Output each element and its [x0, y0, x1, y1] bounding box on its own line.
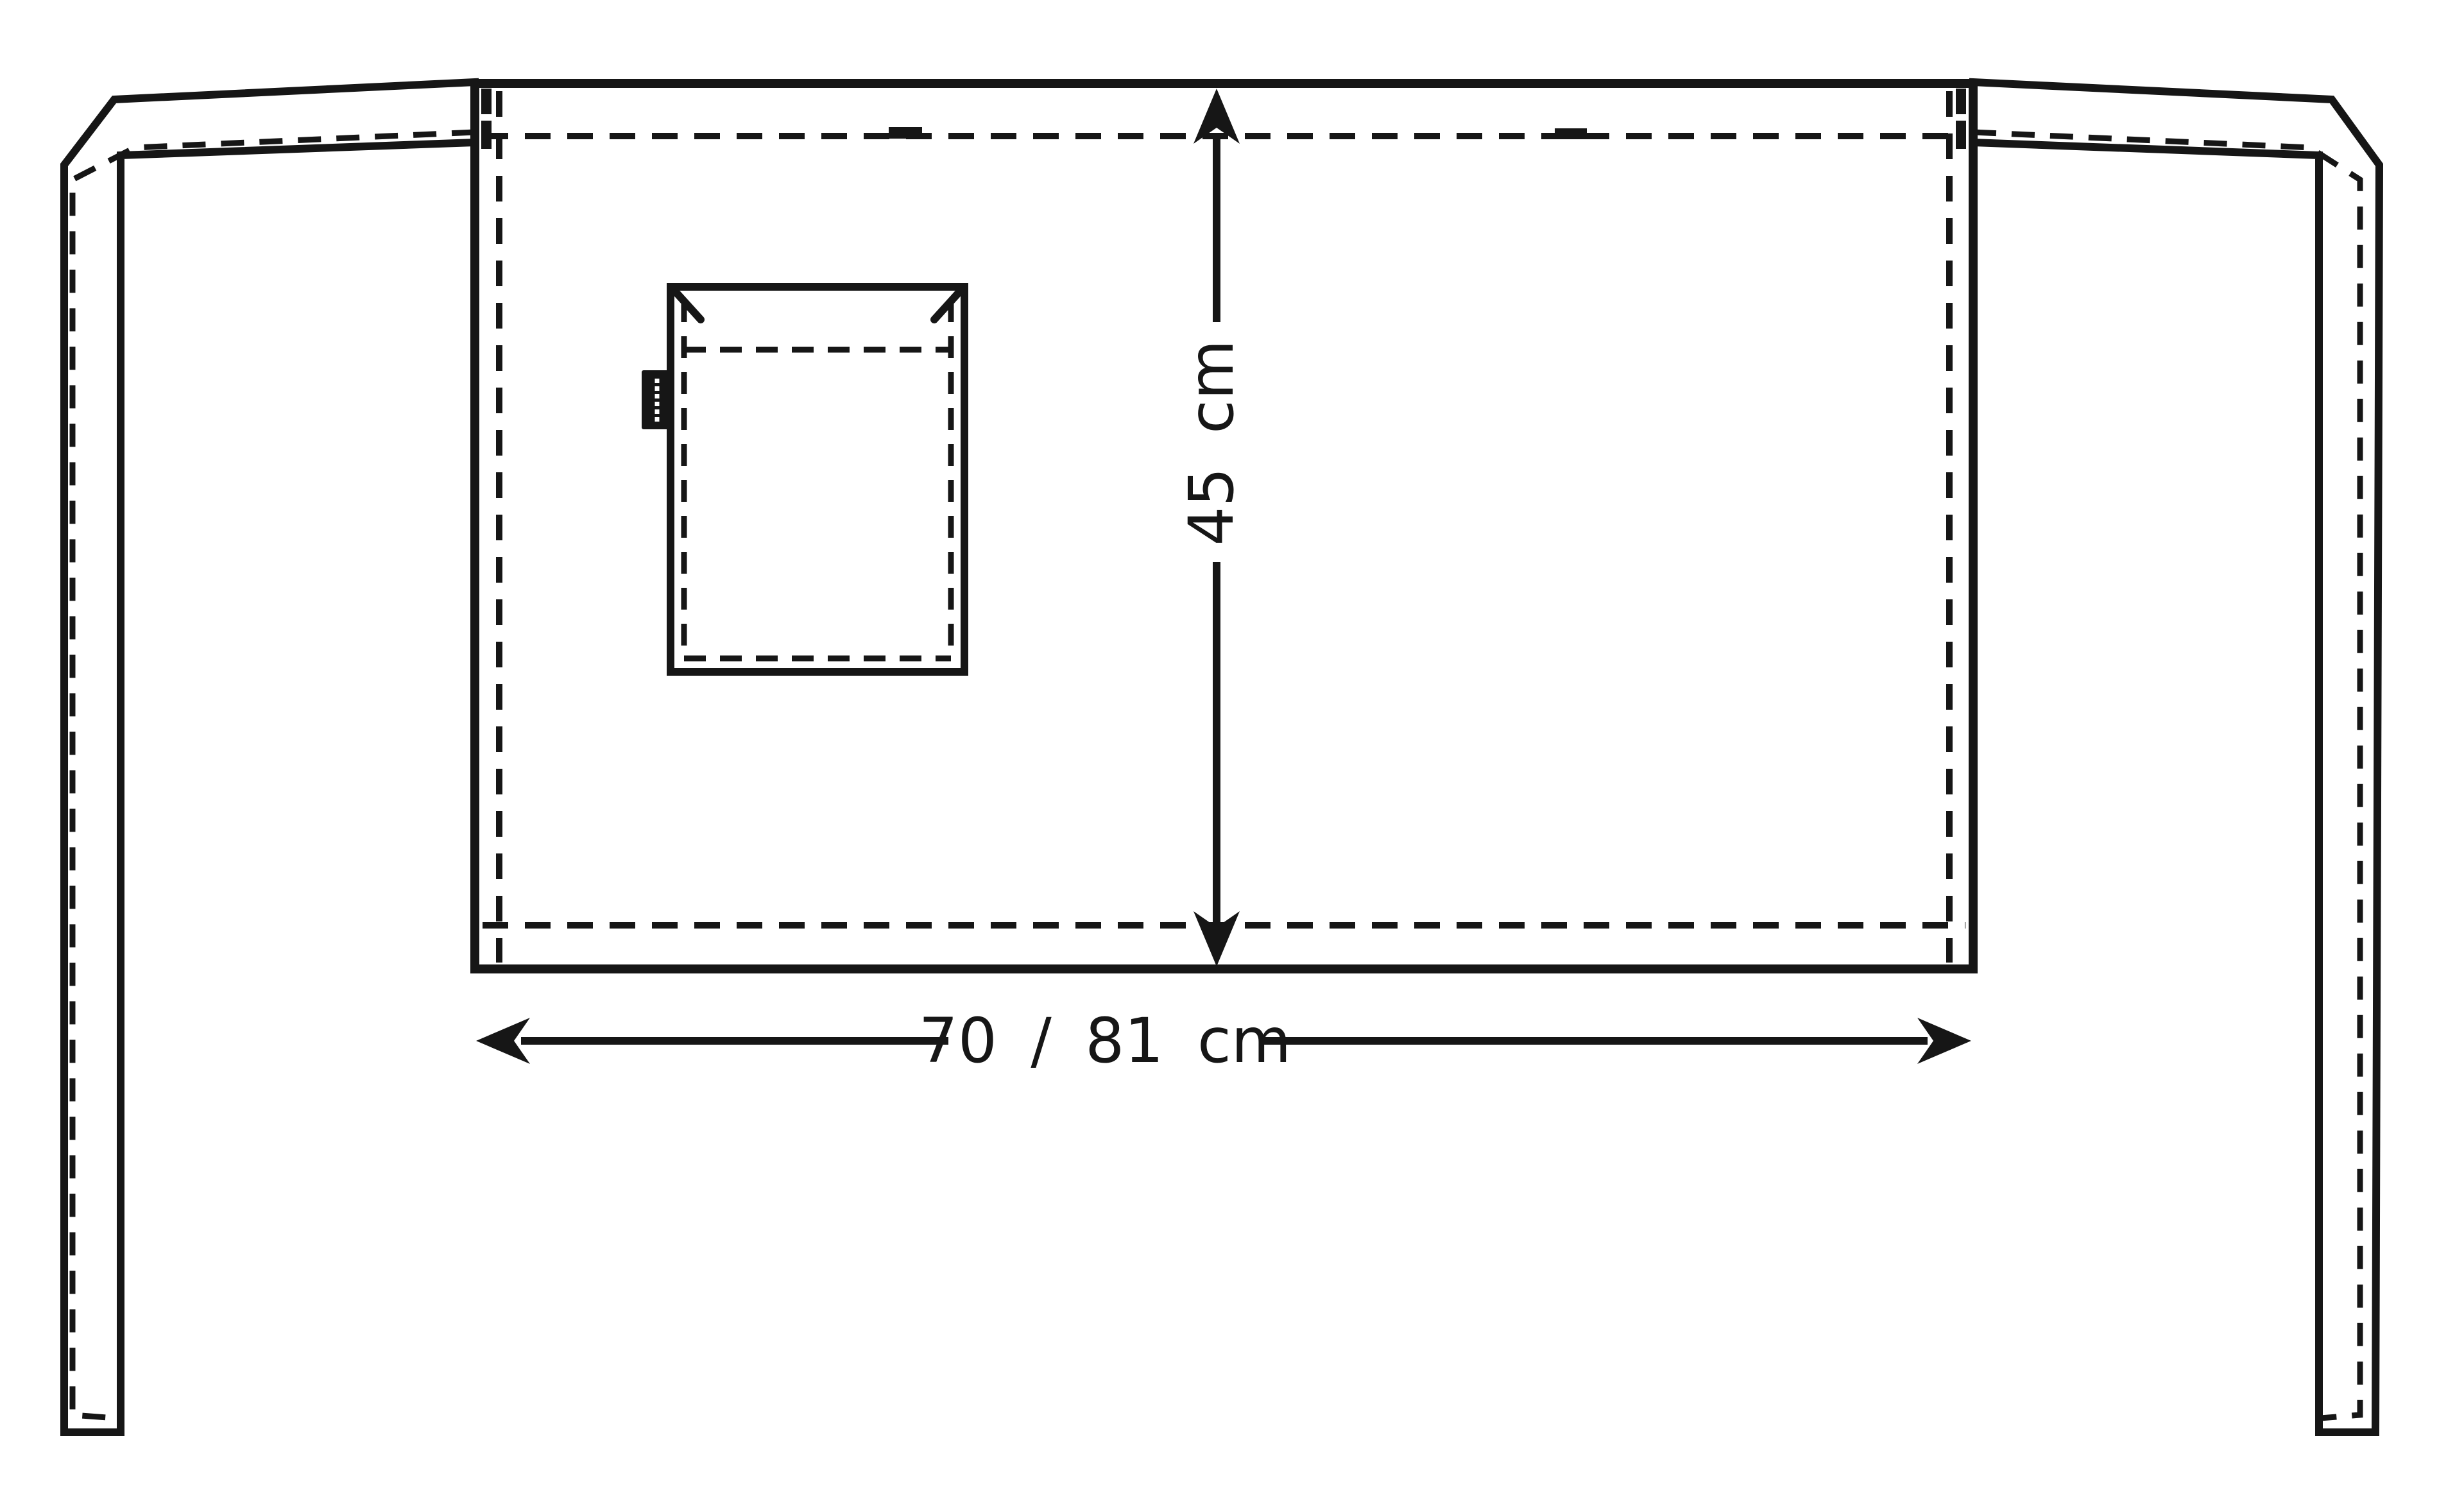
right-edge-bartack-bottom — [1956, 121, 1966, 149]
waistband-bartack-right — [1555, 128, 1587, 139]
right-edge-bartack-top — [1956, 89, 1966, 114]
left-tie-outline — [64, 82, 475, 1432]
left-edge-bartack-top — [481, 89, 492, 114]
right-waist-tie — [1973, 82, 2379, 1432]
height-dimension-label: 45 cm — [1176, 340, 1247, 546]
pocket — [642, 287, 964, 672]
brand-label — [642, 370, 672, 429]
left-edge-bartack-bottom — [481, 121, 492, 149]
right-tie-stitch-line — [1973, 132, 2360, 1418]
apron-diagram-canvas: 45 cm 70 / 81 cm — [0, 0, 2464, 1499]
right-tie-outline — [1973, 82, 2379, 1432]
width-dimension-label: 70 / 81 cm — [919, 1005, 1292, 1077]
pocket-outline — [671, 287, 964, 672]
apron-technical-diagram: 45 cm 70 / 81 cm — [0, 0, 2464, 1499]
width-dimension: 70 / 81 cm — [476, 1005, 1971, 1077]
left-waist-tie — [64, 82, 475, 1432]
left-tie-stitch-line — [73, 132, 475, 1418]
waistband-bartack-left — [889, 127, 922, 139]
